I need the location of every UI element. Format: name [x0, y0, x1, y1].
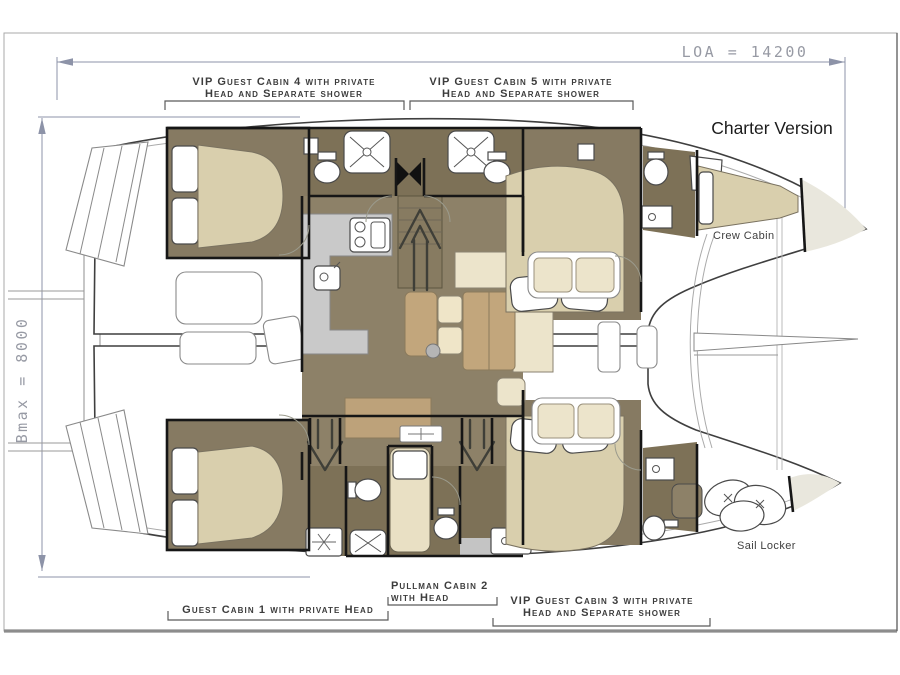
charter-version-title: Charter Version [711, 118, 833, 138]
sink-icon [578, 144, 594, 160]
cockpit-table [598, 322, 620, 372]
pedestal [426, 344, 440, 358]
callout-pullman2: Pullman Cabin 2 with Head [388, 580, 497, 605]
toilet-icon [434, 508, 458, 539]
callout-cabin1: Guest Cabin 1 with private Head [168, 604, 388, 620]
cabin4-label-line1: VIP Guest Cabin 4 with private [192, 76, 375, 88]
shower-icon [344, 131, 390, 173]
callout-cabin3: VIP Guest Cabin 3 with private Head and … [493, 595, 710, 626]
helm-seat [637, 326, 657, 368]
cabin1-label-line1: Guest Cabin 1 with private Head [182, 604, 374, 616]
floorplan-page: LOA = 14200 Bmax = 8000 [0, 0, 900, 675]
cabin3-label-line2: Head and Separate shower [523, 607, 681, 619]
toilet-icon [644, 152, 668, 185]
cabin5-label-line2: Head and Separate shower [442, 88, 600, 100]
stove-icon [350, 218, 390, 252]
catamaran-floorplan-svg: LOA = 14200 Bmax = 8000 [0, 0, 900, 675]
cockpit-locker [176, 272, 262, 324]
pullman-label-line1: Pullman Cabin 2 [391, 580, 488, 592]
bmax-dimension-label: Bmax = 8000 [13, 317, 31, 444]
toilet-icon [314, 152, 340, 183]
pillow [699, 172, 713, 224]
stool [438, 327, 462, 354]
sink-icon [304, 138, 318, 154]
crew-cabin-label: Crew Cabin [713, 230, 774, 242]
cushion [538, 404, 574, 438]
bow-tip-bottom [790, 474, 840, 511]
loa-dimension-label: LOA = 14200 [682, 43, 809, 61]
cabin5-label-line1: VIP Guest Cabin 5 with private [429, 76, 612, 88]
hatch-vent-icon [306, 528, 342, 556]
cabin4-label-line2: Head and Separate shower [205, 88, 363, 100]
salon-sliding-door [262, 315, 305, 365]
sail-locker-label: Sail Locker [737, 540, 796, 552]
pillow [172, 146, 198, 192]
sink-icon [642, 206, 672, 228]
toilet-icon [348, 479, 381, 501]
pillow [393, 451, 427, 479]
bowsprit [694, 333, 858, 351]
cushion [534, 258, 572, 292]
sink-icon [314, 262, 340, 290]
callout-cabin4: VIP Guest Cabin 4 with private Head and … [165, 76, 404, 110]
catamaran-plan [8, 119, 866, 556]
pillow [172, 198, 198, 244]
callout-cabin5: VIP Guest Cabin 5 with private Head and … [410, 76, 633, 110]
cushion [576, 258, 614, 292]
bow-tip-top [801, 179, 866, 252]
stool [438, 296, 462, 323]
cushion [578, 404, 614, 438]
cabin3-label-line1: VIP Guest Cabin 3 with private [510, 595, 693, 607]
cockpit-locker [180, 332, 256, 364]
mattress [198, 145, 283, 248]
bed-pullman [390, 448, 430, 552]
shower-icon [350, 530, 386, 556]
pullman-label-line2: with Head [391, 592, 449, 604]
pillow [172, 500, 198, 546]
ottoman [497, 378, 525, 406]
pillow [172, 448, 198, 494]
